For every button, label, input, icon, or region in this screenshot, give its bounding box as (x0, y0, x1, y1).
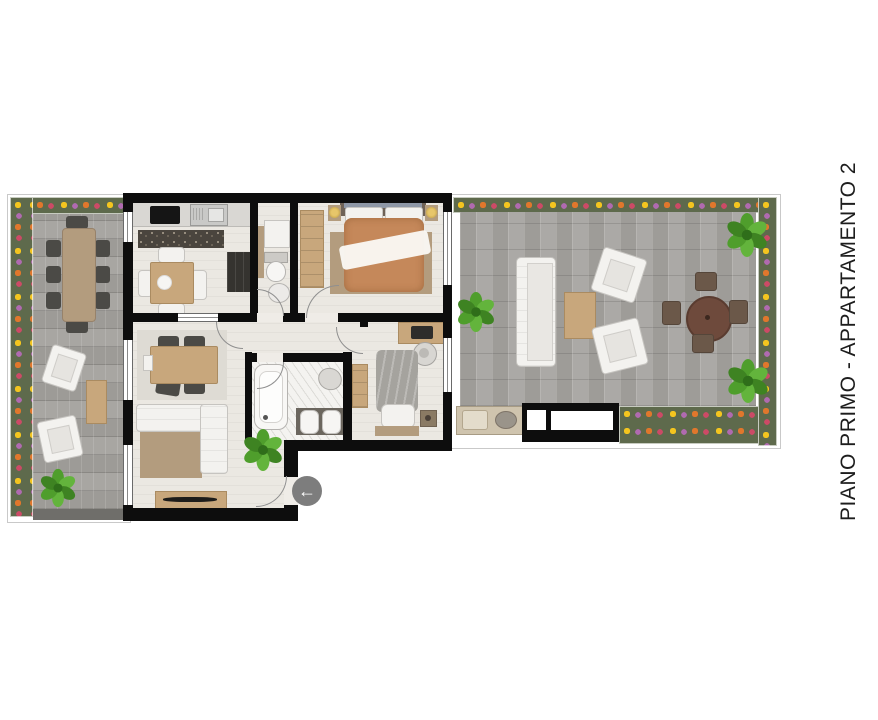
vanity-sink (300, 410, 319, 434)
outdoor-chair (95, 266, 110, 283)
desk (398, 322, 445, 344)
sofa-chaise (200, 404, 228, 474)
laptop-icon (411, 326, 433, 339)
wall (245, 352, 252, 440)
armchair-cushion (51, 353, 78, 382)
wall (123, 193, 452, 203)
outdoor-armchair (36, 414, 84, 463)
wall (245, 353, 257, 362)
outdoor-chair (46, 266, 61, 283)
knob (425, 415, 431, 421)
wall (123, 508, 298, 521)
outdoor-dining-table (62, 228, 96, 322)
plant-icon (455, 290, 497, 334)
living-rug (140, 430, 202, 478)
outdoor-chair (95, 240, 110, 257)
lamp-icon (426, 207, 437, 218)
window (527, 410, 546, 430)
outdoor-chair (729, 300, 748, 324)
single-bed (376, 350, 418, 412)
flowerbed (453, 197, 777, 213)
outdoor-chair (695, 272, 717, 291)
kitchen-mat (138, 230, 224, 248)
wardrobe (300, 210, 324, 288)
outdoor-counter (456, 406, 524, 435)
wall (283, 313, 305, 322)
armchair-cushion (603, 329, 637, 363)
wall (290, 203, 298, 313)
outdoor-chair (46, 292, 61, 309)
kitchen-sink (190, 204, 228, 226)
floor-plan-page: ← PIANO PRIMO - APPARTAMENTO 2 (0, 0, 878, 720)
outdoor-basin (495, 411, 517, 429)
washing-machine (264, 220, 290, 248)
flowerbed (10, 197, 33, 517)
sink-drainer (193, 208, 205, 220)
cooktop-icon (150, 206, 180, 224)
entrance-arrow-icon: ← (298, 481, 316, 502)
sink-basin (208, 208, 224, 222)
outdoor-chair (46, 240, 61, 257)
plant-icon (725, 358, 771, 404)
outdoor-chair (692, 334, 714, 353)
window (123, 212, 133, 242)
wall (284, 440, 298, 477)
chair (158, 247, 185, 263)
window (443, 338, 452, 392)
window (123, 445, 133, 505)
drain-icon (263, 415, 268, 420)
lamp-icon (329, 207, 340, 218)
armchair-cushion (602, 259, 635, 293)
wall (343, 352, 352, 440)
door-opening (257, 353, 283, 362)
plate (157, 275, 172, 290)
kitchen-table (150, 262, 194, 304)
plant-icon (38, 468, 78, 508)
outdoor-side-table (86, 380, 107, 424)
headboard (375, 426, 419, 436)
flowerbed (619, 406, 759, 444)
outdoor-chair (95, 292, 110, 309)
armchair-cushion (47, 425, 75, 454)
window (443, 212, 452, 285)
wall (360, 313, 368, 327)
window (551, 411, 613, 430)
vanity-sink (322, 410, 341, 434)
plant-icon (724, 212, 770, 258)
wall (283, 353, 343, 362)
wardrobe (352, 364, 368, 408)
nightstand (420, 410, 437, 427)
tv-icon (163, 497, 217, 502)
plant-icon (240, 428, 286, 472)
wall (218, 313, 257, 322)
table-center (705, 315, 710, 320)
window (123, 340, 133, 400)
entrance-arrow-badge: ← (292, 476, 322, 506)
chair-seat (419, 348, 429, 358)
wall (133, 313, 178, 322)
wall (338, 313, 452, 322)
outdoor-chair (662, 301, 681, 325)
chair (143, 355, 153, 371)
pillow (381, 404, 415, 428)
window (178, 313, 218, 322)
living-dining-table (150, 346, 218, 384)
toilet (266, 261, 286, 282)
terrace-edge (33, 509, 123, 520)
tall-cabinet (227, 252, 250, 292)
outdoor-sink (462, 410, 488, 430)
wall (298, 440, 452, 451)
sofa-cushion (527, 263, 553, 361)
vanity-counter (296, 408, 343, 435)
outdoor-sofa (516, 257, 556, 367)
plan-title: PIANO PRIMO - APPARTAMENTO 2 (837, 191, 867, 521)
terrace-wall (522, 403, 619, 442)
